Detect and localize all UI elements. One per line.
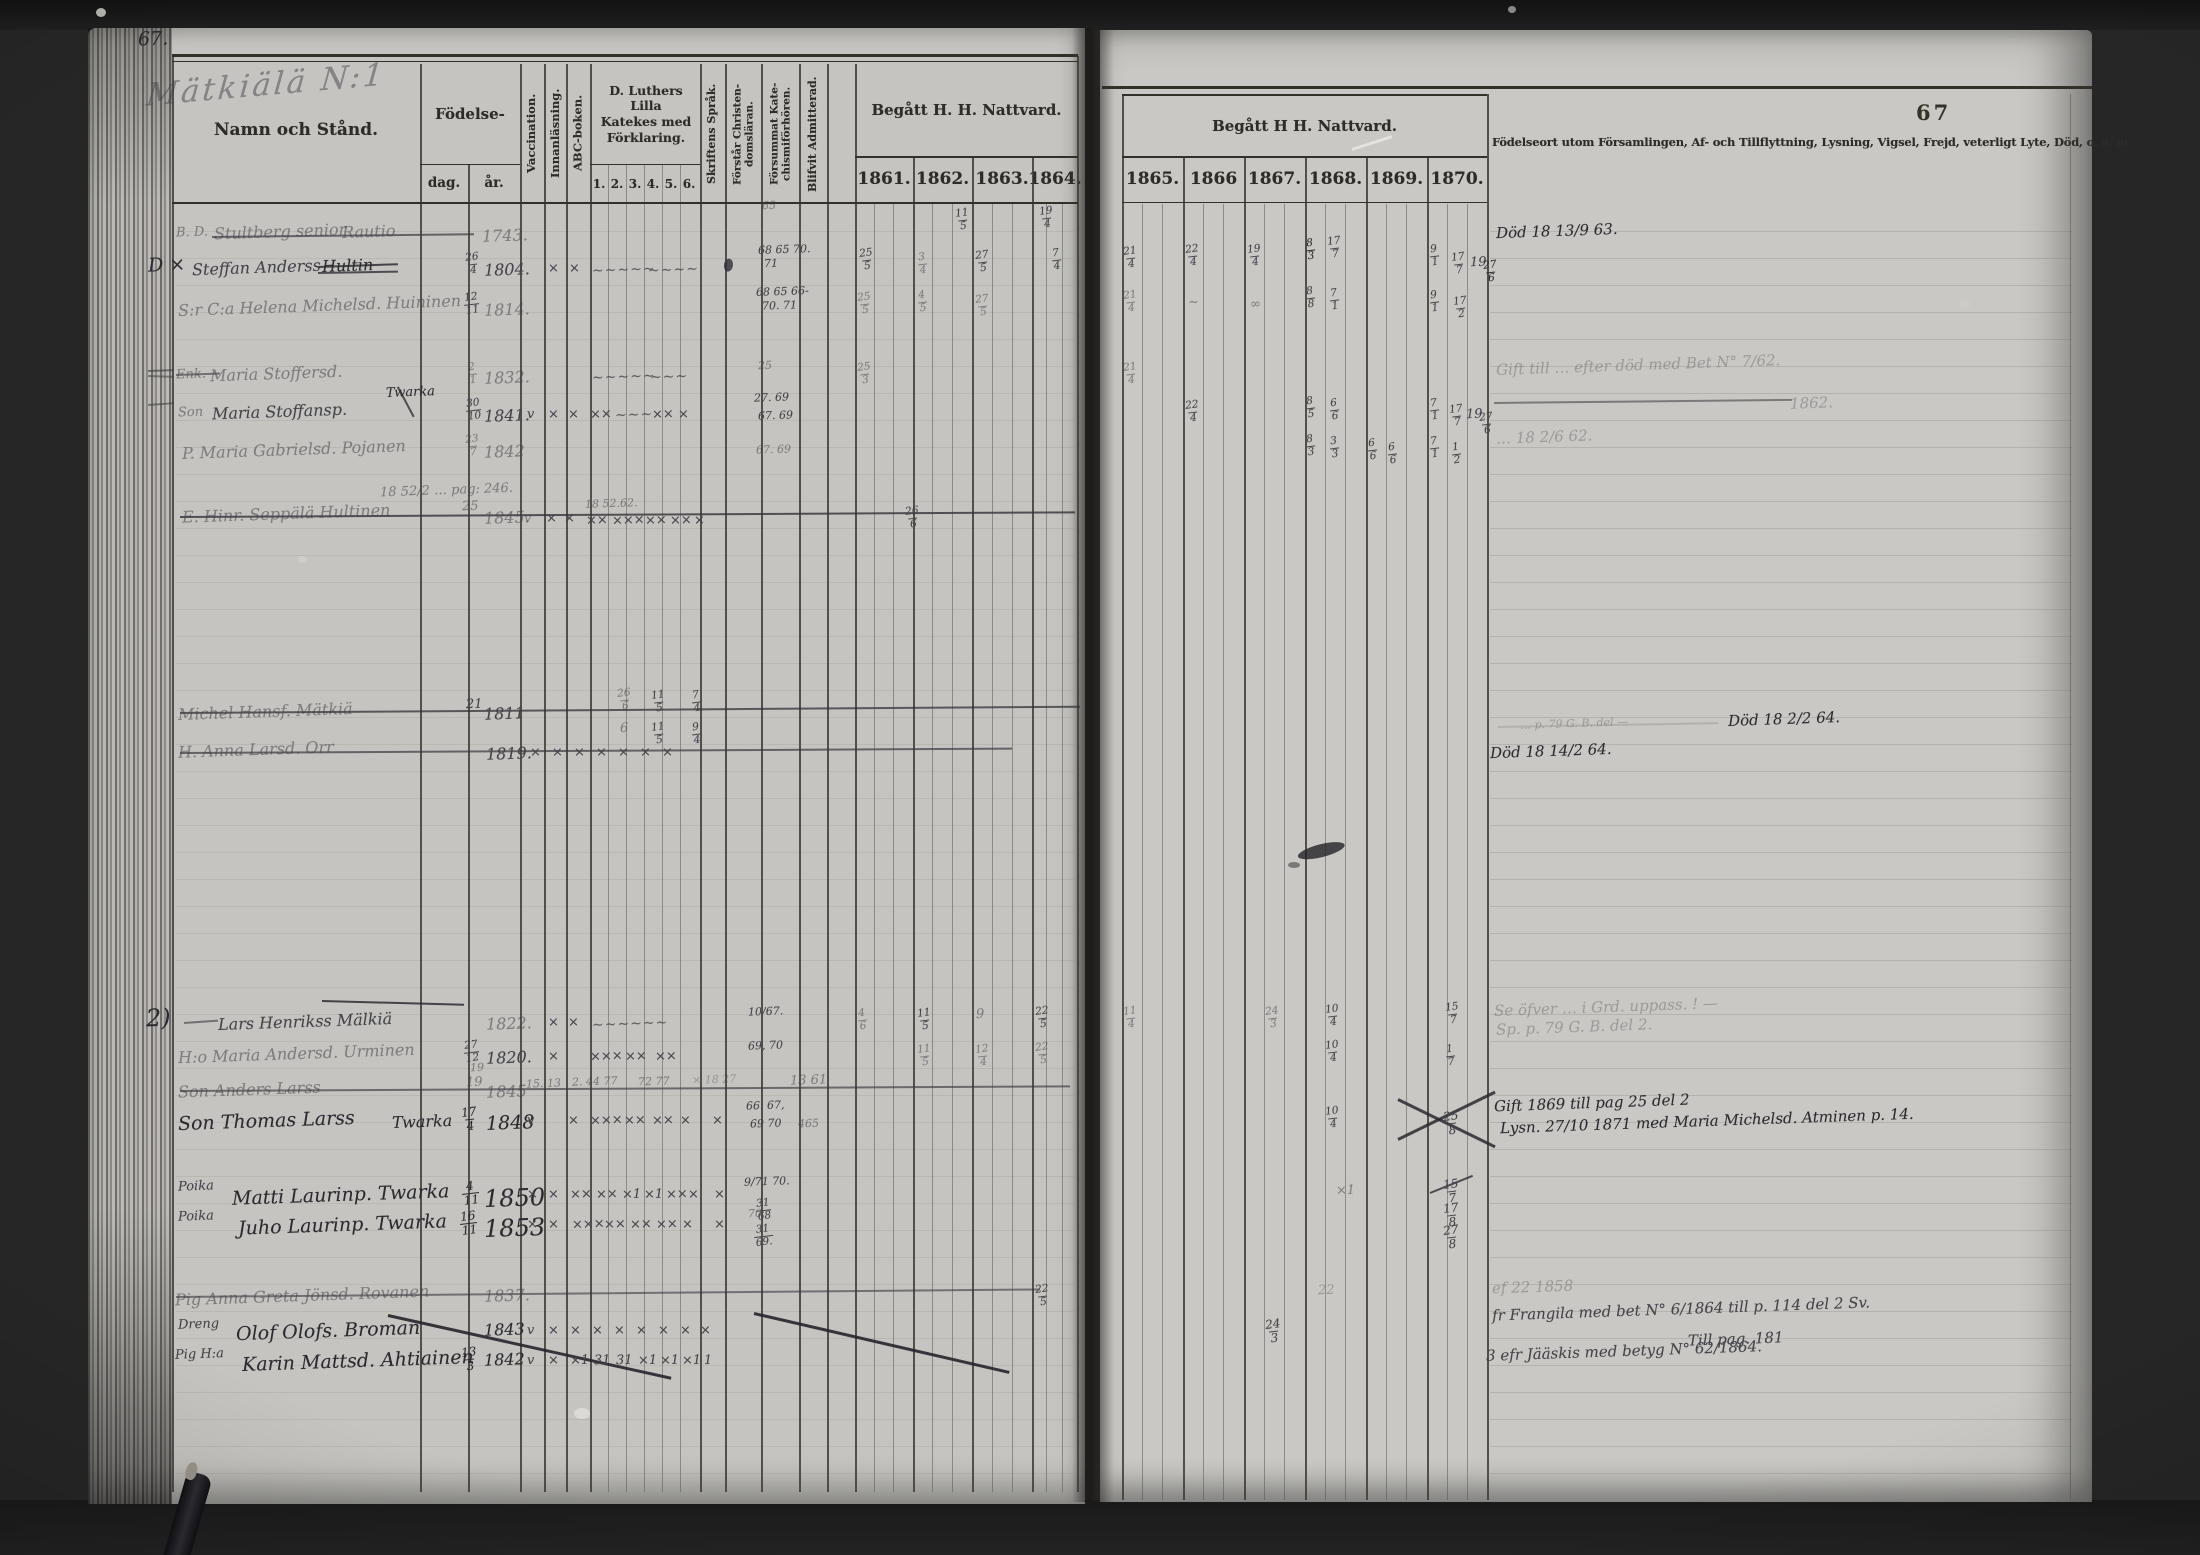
handwriting-entry: 69 70 bbox=[750, 1117, 782, 1129]
katekes-sub-3: 3. bbox=[626, 166, 644, 202]
handwriting-entry: 9/71 70. bbox=[744, 1175, 790, 1188]
handwriting-entry: 1611 bbox=[458, 1209, 478, 1237]
rule-line bbox=[1427, 156, 1429, 1500]
handwriting-entry: 115 bbox=[651, 721, 667, 745]
col-header-begatt-nattvard-right: Begått H H. Nattvard. bbox=[1122, 95, 1487, 157]
handwriting-entry: × bbox=[569, 262, 580, 275]
handwriting-entry: × bbox=[564, 512, 575, 525]
handwriting-entry: × bbox=[548, 1016, 559, 1029]
handwriting-entry: × bbox=[527, 1188, 538, 1201]
handwriting-entry: Rautio bbox=[342, 223, 396, 241]
handwriting-entry: × bbox=[548, 1218, 559, 1231]
handwriting-entry: 15. 13 bbox=[526, 1077, 561, 1089]
handwriting-entry: 3010 bbox=[465, 397, 483, 422]
handwriting-entry: 224 bbox=[1185, 399, 1201, 423]
handwriting-entry: 275 bbox=[975, 249, 991, 273]
handwriting-entry: Son bbox=[178, 406, 204, 420]
handwriting-entry: × bbox=[548, 1354, 559, 1367]
handwriting-entry: ×× bbox=[625, 1050, 647, 1064]
handwriting-entry: … 18 2/6 62. bbox=[1496, 428, 1593, 446]
rule-line bbox=[1162, 204, 1163, 1500]
rule-line bbox=[1223, 204, 1224, 1500]
year-header-1865: 1865. bbox=[1122, 158, 1183, 202]
handwriting-entry: ×× bbox=[624, 1114, 646, 1128]
handwriting-entry: Stultberg senior bbox=[214, 222, 347, 243]
rule-line bbox=[1264, 204, 1265, 1500]
rule-line bbox=[952, 204, 953, 1492]
rule-line bbox=[544, 64, 546, 1492]
handwriting-entry: Steffan Anderss bbox=[192, 258, 321, 278]
handwriting-entry: 104 bbox=[1325, 1003, 1341, 1027]
rule-line bbox=[1183, 156, 1185, 1500]
rule-line bbox=[420, 164, 520, 165]
handwriting-entry: 68 65 70. bbox=[758, 243, 811, 256]
handwriting-entry: 177 bbox=[1327, 235, 1343, 259]
rule-line bbox=[893, 204, 894, 1492]
handwriting-entry: 133 bbox=[460, 1345, 478, 1373]
handwriting-entry: × bbox=[658, 1324, 669, 1337]
handwriting-entry: × bbox=[568, 408, 579, 421]
handwriting-entry: 1845 bbox=[486, 1083, 527, 1100]
year-header-1866: 1866 bbox=[1183, 158, 1244, 202]
handwriting-entry: × bbox=[548, 1188, 559, 1201]
handwriting-entry: ××× bbox=[572, 1217, 605, 1231]
handwriting-entry: 237 bbox=[465, 433, 481, 457]
handwriting-entry: 225 bbox=[1035, 1041, 1051, 1065]
handwriting-entry: × bbox=[618, 746, 629, 759]
rule-line bbox=[1406, 204, 1407, 1500]
rule-line bbox=[172, 54, 1078, 57]
handwriting-entry: Maria Stoffersd. bbox=[210, 364, 343, 385]
col-header-katekes: D. Luthers Lilla Katekes med Förklaring. bbox=[592, 64, 700, 164]
col-header-skriftens-sprak: Skriftens Språk. bbox=[699, 66, 726, 202]
handwriting-entry: ×× bbox=[652, 1114, 674, 1128]
handwriting-entry: ×× bbox=[652, 408, 674, 422]
handwriting-entry: 214 bbox=[1123, 245, 1139, 269]
handwriting-entry: 6 bbox=[620, 722, 629, 735]
handwriting-entry: 114 bbox=[1123, 1005, 1139, 1029]
rule-line bbox=[1122, 156, 1487, 158]
handwriting-entry: 1211 bbox=[463, 291, 481, 316]
handwriting-entry: 157 bbox=[1445, 1001, 1461, 1025]
handwriting-entry: 214 bbox=[1123, 289, 1139, 313]
handwriting-entry: ×1 bbox=[622, 1188, 642, 1202]
katekes-sub-2: 2. bbox=[608, 166, 626, 202]
handwriting-entry: × 18 27 bbox=[692, 1073, 737, 1086]
handwriting-entry: 1814. bbox=[484, 301, 530, 319]
handwriting-entry: ×× bbox=[586, 514, 608, 528]
handwriting-entry: 194 bbox=[1039, 205, 1055, 229]
rule-line bbox=[1203, 204, 1204, 1500]
handwriting-entry: × bbox=[568, 1016, 579, 1029]
handwriting-entry: ~~~ bbox=[650, 369, 689, 384]
handwriting-entry: 104 bbox=[1325, 1039, 1341, 1063]
rule-line bbox=[1122, 94, 1487, 96]
rule-line bbox=[1012, 204, 1013, 1492]
handwriting-entry: ×× bbox=[645, 514, 667, 528]
ink-stroke bbox=[1508, 6, 1516, 13]
handwriting-entry: ×1 bbox=[1336, 1184, 1356, 1198]
handwriting-entry: 67. 69 bbox=[756, 443, 791, 455]
handwriting-entry: × bbox=[680, 1114, 691, 1127]
handwriting-entry: 2) bbox=[146, 1006, 171, 1031]
handwriting-entry: 69, 70 bbox=[748, 1039, 783, 1051]
handwriting-entry: 1837. bbox=[484, 1287, 530, 1305]
ink-stroke bbox=[1960, 300, 1970, 308]
book-page-stack-edge bbox=[88, 28, 172, 1504]
rule-line bbox=[1305, 156, 1307, 1500]
rule-line bbox=[932, 204, 933, 1492]
col-header-ar: år. bbox=[468, 164, 520, 202]
rule-line bbox=[590, 164, 700, 165]
col-header-fodelse: Födelse- bbox=[420, 66, 520, 162]
handwriting-entry: B. D. bbox=[176, 225, 208, 239]
handwriting-entry: 465 bbox=[798, 1118, 819, 1130]
handwriting-entry: Död 18 13/9 63. bbox=[1496, 222, 1618, 241]
handwriting-entry: ×1 bbox=[638, 1354, 658, 1368]
handwriting-entry: … p. 79 G. B. del — bbox=[1520, 716, 1628, 731]
rule-line bbox=[1032, 156, 1034, 1492]
handwriting-entry: × bbox=[548, 408, 559, 421]
rule-line bbox=[1284, 204, 1285, 1500]
handwriting-entry: ××× bbox=[612, 513, 645, 527]
handwriting-entry: 1804. bbox=[484, 261, 530, 279]
rule-line bbox=[855, 156, 1078, 158]
handwriting-entry: Twarka bbox=[392, 1113, 453, 1131]
rule-line bbox=[874, 204, 875, 1492]
rule-line bbox=[1447, 204, 1448, 1500]
rule-line bbox=[1122, 94, 1124, 1500]
rule-line bbox=[827, 64, 829, 1492]
rule-line bbox=[1102, 86, 2092, 89]
handwriting-entry: × bbox=[640, 746, 651, 759]
handwriting-entry: ∞ bbox=[1250, 298, 1261, 311]
handwriting-entry: 2. 44 77 bbox=[572, 1075, 618, 1088]
handwriting-entry: 67. 69 bbox=[758, 409, 793, 421]
handwriting-entry: × bbox=[682, 1218, 693, 1231]
handwriting-entry: v bbox=[527, 1354, 535, 1367]
ledger-left-page bbox=[88, 28, 1085, 1504]
handwriting-entry: 9 bbox=[976, 1008, 985, 1021]
handwriting-entry: 253 bbox=[857, 361, 873, 385]
handwriting-entry: ×× bbox=[630, 1218, 652, 1232]
handwriting-entry: 21 bbox=[466, 698, 483, 712]
handwriting-entry: Död 18 14/2 64. bbox=[1490, 742, 1612, 761]
handwriting-entry: 124 bbox=[975, 1043, 991, 1067]
handwriting-entry: 1862. bbox=[1790, 395, 1833, 411]
handwriting-entry: 225 bbox=[1035, 1283, 1051, 1307]
rule-line bbox=[1077, 56, 1079, 1492]
year-header-1864: 1864. bbox=[1032, 158, 1078, 202]
katekes-sub-1: 1. bbox=[590, 166, 608, 202]
rule-line bbox=[1467, 204, 1468, 1500]
handwriting-entry: 13 61 bbox=[790, 1073, 828, 1087]
handwriting-entry: v bbox=[527, 1324, 535, 1337]
handwriting-entry: 255 bbox=[857, 291, 873, 315]
ink-stroke bbox=[96, 8, 106, 17]
handwriting-entry: Poika bbox=[178, 1209, 214, 1223]
handwriting-entry: × bbox=[527, 1218, 538, 1231]
handwriting-entry: 255 bbox=[859, 247, 875, 271]
handwriting-entry: × bbox=[636, 1324, 647, 1337]
ink-stroke bbox=[1288, 862, 1300, 868]
rule-line bbox=[1345, 204, 1346, 1500]
rule-line bbox=[2070, 94, 2071, 1500]
handwriting-entry: ~~~~ bbox=[648, 262, 699, 278]
handwriting-entry: ×1 bbox=[570, 1354, 590, 1368]
handwriting-entry: 19 bbox=[470, 1062, 484, 1073]
printed-folio-number: 67 bbox=[1916, 100, 1951, 125]
handwriting-entry: 266 bbox=[617, 687, 633, 711]
handwriting-entry: ef 22 1858 bbox=[1492, 1279, 1574, 1297]
ink-stroke bbox=[574, 1408, 590, 1419]
handwriting-entry: × bbox=[574, 746, 585, 759]
handwriting-entry: ×× bbox=[596, 1188, 618, 1202]
handwriting-entry: ~~~ bbox=[615, 407, 654, 422]
handwriting-entry: 225 bbox=[1035, 1005, 1051, 1029]
year-header-1862: 1862. bbox=[913, 158, 972, 202]
handwriting-entry: × bbox=[552, 746, 563, 759]
handwriting-entry: 275 bbox=[975, 293, 991, 317]
handwriting-entry: 1822. bbox=[486, 1015, 532, 1033]
col-header-forstar-christendomslaran: Förstår Christen- domsläran. bbox=[725, 66, 762, 202]
handwriting-entry: ××× bbox=[590, 1049, 623, 1063]
handwriting-entry: ~~~~~ bbox=[592, 369, 656, 385]
handwriting-entry: 68 65 66- bbox=[756, 285, 809, 298]
handwriting-entry: 177 bbox=[1451, 251, 1467, 275]
scanned-ledger-photo: Namn och Stånd. Födelse- dag. år. Vaccin… bbox=[0, 0, 2200, 1555]
rule-line bbox=[799, 64, 801, 1492]
handwriting-entry: v bbox=[524, 512, 532, 525]
handwriting-entry: 25 bbox=[462, 500, 479, 514]
handwriting-entry: ×× bbox=[666, 1188, 688, 1202]
col-header-forsummat-katechismiforhoren: Försummat Kate- chismiförhören. bbox=[761, 66, 800, 202]
handwriting-entry: 177 bbox=[1449, 403, 1465, 427]
rule-line bbox=[1487, 94, 1489, 1500]
rule-line bbox=[972, 156, 974, 1492]
rule-line bbox=[761, 64, 763, 1492]
rule-line bbox=[172, 61, 1078, 62]
handwriting-entry: 115 bbox=[917, 1007, 933, 1031]
col-header-innanlasning: Innanläsning. bbox=[544, 66, 567, 200]
handwriting-entry: 72 77 bbox=[638, 1075, 670, 1087]
handwriting-entry: 276 bbox=[1483, 259, 1499, 283]
handwriting-entry: 243 bbox=[1265, 1005, 1281, 1029]
handwriting-entry: Pig H:a bbox=[175, 1347, 224, 1362]
handwriting-entry: × bbox=[694, 514, 705, 527]
katekes-sub-6: 6. bbox=[680, 166, 698, 202]
handwriting-entry: × bbox=[678, 408, 689, 421]
handwriting-entry: 70 bbox=[748, 1208, 762, 1219]
handwriting-entry: ×× bbox=[655, 1050, 677, 1064]
handwriting-entry: 1 bbox=[704, 1354, 713, 1367]
handwriting-entry: 172 bbox=[1453, 295, 1469, 319]
handwriting-entry: Maria Stoffansp. bbox=[212, 402, 348, 423]
col-header-abc-boken: ABC-boken. bbox=[566, 66, 590, 200]
handwriting-entry: 278 bbox=[1442, 1223, 1460, 1251]
rule-line bbox=[420, 64, 422, 1492]
handwriting-entry: ~~~~~~ bbox=[592, 1016, 669, 1033]
rule-line bbox=[1366, 156, 1368, 1500]
handwriting-entry: 31 bbox=[616, 1354, 633, 1368]
handwriting-entry: 22 bbox=[1318, 1284, 1335, 1298]
handwriting-entry: 276 bbox=[1479, 411, 1495, 435]
rule-line bbox=[1142, 204, 1143, 1500]
handwriting-entry: × bbox=[714, 1218, 725, 1231]
handwriting-entry: × bbox=[662, 746, 673, 759]
handwriting-entry: 66. 67, bbox=[746, 1099, 785, 1111]
handwriting-entry: 1743. bbox=[482, 227, 528, 245]
handwriting-entry: × bbox=[570, 1324, 581, 1337]
handwriting-entry: 10/67. bbox=[748, 1005, 784, 1017]
year-header-1861: 1861. bbox=[855, 158, 913, 202]
handwriting-entry: Till pag. 181 bbox=[1688, 1330, 1784, 1348]
handwriting-entry: × bbox=[548, 1324, 559, 1337]
rule-line bbox=[566, 64, 568, 1492]
handwriting-entry: ×× bbox=[656, 1218, 678, 1232]
ink-stroke bbox=[298, 556, 307, 563]
handwriting-entry: ~~~~~ bbox=[592, 262, 656, 278]
handwriting-entry: 243 bbox=[1264, 1317, 1282, 1345]
handwriting-entry: ×× bbox=[670, 514, 692, 528]
handwriting-entry: 264 bbox=[465, 251, 481, 275]
handwriting-entry: Död 18 2/2 64. bbox=[1728, 710, 1841, 729]
katekes-sub-4: 4. bbox=[644, 166, 662, 202]
photo-edge-bottom bbox=[0, 1500, 2200, 1555]
handwriting-entry: 1819. bbox=[486, 745, 532, 763]
year-header-1869: 1869. bbox=[1366, 158, 1427, 202]
year-header-1867: 1867. bbox=[1244, 158, 1305, 202]
handwriting-entry: 224 bbox=[1185, 243, 1201, 267]
rule-line bbox=[725, 64, 727, 1492]
handwriting-entry: × bbox=[680, 1324, 691, 1337]
col-header-dag: dag. bbox=[420, 164, 468, 202]
handwriting-entry: × bbox=[548, 262, 559, 275]
year-header-1868: 1868. bbox=[1305, 158, 1366, 202]
handwriting-entry: 1843 bbox=[484, 1321, 525, 1338]
handwriting-entry: × bbox=[530, 746, 541, 759]
katekes-sub-5: 5. bbox=[662, 166, 680, 202]
handwriting-entry: 115 bbox=[651, 689, 667, 713]
handwriting-entry: × bbox=[568, 1114, 579, 1127]
handwriting-entry: 18 52.62. bbox=[585, 497, 638, 510]
handwriting-entry: 266 bbox=[905, 505, 921, 529]
handwriting-entry: × bbox=[614, 1324, 625, 1337]
handwriting-entry: Enk. bbox=[176, 367, 206, 381]
handwriting-entry: 1811 bbox=[484, 705, 525, 722]
handwriting-entry: ×× bbox=[570, 1188, 592, 1202]
handwriting-entry: 411 bbox=[460, 1179, 480, 1207]
handwriting-entry: v bbox=[527, 408, 535, 421]
handwriting-entry: ×× bbox=[604, 1218, 626, 1232]
handwriting-entry: ×1 bbox=[682, 1354, 702, 1368]
col-header-begatt-nattvard-left: Begått H. H. Nattvard. bbox=[855, 64, 1078, 156]
year-header-1870: 1870. bbox=[1427, 158, 1487, 202]
handwriting-entry: ~ bbox=[1188, 296, 1199, 309]
handwriting-entry: Hultin bbox=[322, 257, 374, 275]
handwriting-entry: 25 bbox=[758, 360, 772, 371]
handwriting-entry: ×× bbox=[590, 408, 612, 422]
col-header-notes: Födelseort utom Församlingen, Af- och Ti… bbox=[1492, 135, 2082, 149]
handwriting-entry: 67. bbox=[138, 29, 169, 49]
rule-line bbox=[1062, 204, 1063, 1492]
handwriting-entry: 115 bbox=[955, 207, 971, 231]
handwriting-entry: 1832. bbox=[484, 369, 530, 387]
rule-line bbox=[1244, 156, 1246, 1500]
handwriting-entry: Poika bbox=[178, 1179, 214, 1193]
handwriting-entry: 1842 bbox=[484, 1351, 525, 1368]
rule-line bbox=[700, 64, 702, 1492]
handwriting-entry: 1820. bbox=[486, 1049, 532, 1067]
handwriting-entry: × bbox=[714, 1188, 725, 1201]
handwriting-entry: ××× bbox=[590, 1113, 623, 1127]
handwriting-entry: × bbox=[700, 1324, 711, 1337]
col-header-blifvit-admitterad: Blifvit Admitterad. bbox=[799, 66, 828, 202]
handwriting-entry: 31 bbox=[594, 1354, 611, 1368]
year-header-1863: 1863. bbox=[972, 158, 1032, 202]
handwriting-entry: × bbox=[596, 746, 607, 759]
handwriting-entry: D × bbox=[148, 255, 186, 275]
handwriting-entry: × bbox=[592, 1324, 603, 1337]
rule-line bbox=[172, 202, 1078, 204]
handwriting-entry: ×1 bbox=[660, 1354, 680, 1368]
handwriting-entry: 1841. bbox=[484, 407, 530, 425]
handwriting-entry: × bbox=[688, 1188, 699, 1201]
col-header-vaccination: Vaccination. bbox=[519, 66, 544, 200]
handwriting-entry: 27. 69 bbox=[754, 391, 789, 403]
handwriting-entry: ×1 bbox=[644, 1188, 664, 1202]
rule-line bbox=[1122, 202, 1487, 203]
handwriting-entry: 19 bbox=[466, 1076, 483, 1090]
handwriting-entry: 3169. bbox=[753, 1223, 774, 1248]
handwriting-entry: 174 bbox=[460, 1105, 478, 1133]
handwriting-entry: 71 bbox=[764, 258, 778, 269]
rule-line bbox=[1386, 204, 1387, 1500]
handwriting-entry: 65 bbox=[762, 200, 776, 211]
handwriting-entry: 1842 bbox=[484, 443, 525, 460]
handwriting-entry: 194 bbox=[1247, 243, 1263, 267]
rule-line bbox=[913, 156, 915, 1492]
handwriting-entry: Twarka bbox=[386, 385, 435, 400]
rule-line bbox=[992, 204, 993, 1492]
handwriting-entry: 115 bbox=[917, 1043, 933, 1067]
photo-edge-top bbox=[0, 0, 2200, 30]
handwriting-entry: × bbox=[546, 512, 557, 525]
handwriting-entry: × bbox=[548, 1050, 559, 1063]
handwriting-entry: 104 bbox=[1325, 1105, 1341, 1129]
handwriting-entry: 258 bbox=[1442, 1109, 1460, 1137]
handwriting-entry: × bbox=[712, 1114, 723, 1127]
handwriting-entry: 70. 71 bbox=[762, 299, 797, 311]
handwriting-entry: 214 bbox=[1123, 361, 1139, 385]
handwriting-entry: v bbox=[527, 1114, 535, 1127]
handwriting-entry: Dreng bbox=[178, 1317, 219, 1331]
rule-line bbox=[855, 64, 857, 1492]
